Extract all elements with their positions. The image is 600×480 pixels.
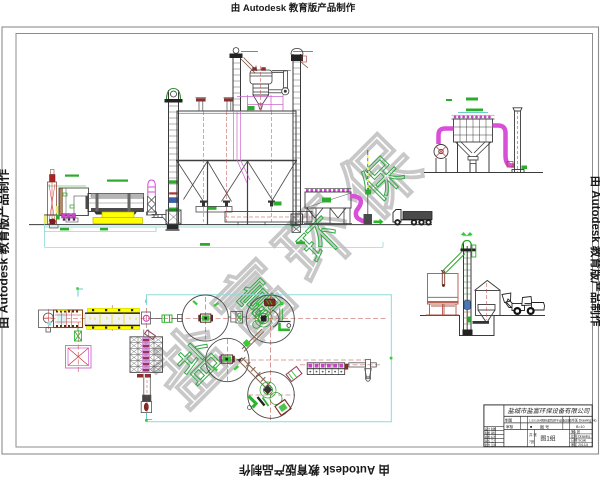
- svg-text:B=10: B=10: [576, 425, 585, 429]
- svg-text:1.5X15M回转滚筒烘干设备总图: 1.5X15M回转滚筒烘干设备总图: [529, 417, 571, 422]
- svg-text:描图 标准: 描图 标准: [485, 435, 497, 439]
- svg-text:由 Autodesk 教育版产品制作: 由 Autodesk 教育版产品制作: [0, 169, 11, 329]
- svg-text:制图 审核: 制图 审核: [485, 431, 497, 435]
- svg-text:图 号: 图 号: [540, 423, 549, 429]
- svg-text:制图: 制图: [505, 418, 513, 423]
- svg-text:■: ■: [530, 425, 532, 429]
- svg-text:由 Autodesk 教育版产品制作: 由 Autodesk 教育版产品制作: [239, 463, 390, 477]
- svg-text:由 Autodesk 教育版产品制作: 由 Autodesk 教育版产品制作: [231, 2, 356, 14]
- svg-text:图1组: 图1组: [540, 435, 555, 443]
- svg-text:7张: 7张: [529, 439, 535, 444]
- svg-text:共张 Drawing No.: 共张 Drawing No.: [571, 418, 597, 423]
- svg-text:盐城市盐富环保设备有限公司: 盐城市盐富环保设备有限公司: [508, 407, 591, 415]
- svg-text:由 Autodesk 教育版产品制作: 由 Autodesk 教育版产品制作: [589, 176, 600, 327]
- svg-text:审定 2013.8: 审定 2013.8: [571, 442, 588, 447]
- svg-text:审核: 审核: [506, 424, 514, 429]
- svg-text:共 张: 共 张: [529, 432, 537, 437]
- svg-text:审核 工艺: 审核 工艺: [485, 439, 497, 443]
- svg-text:批准 日期: 批准 日期: [485, 443, 497, 447]
- svg-text:设计 制图: 设计 制图: [485, 427, 497, 431]
- svg-text:第1 张: 第1 张: [571, 429, 581, 434]
